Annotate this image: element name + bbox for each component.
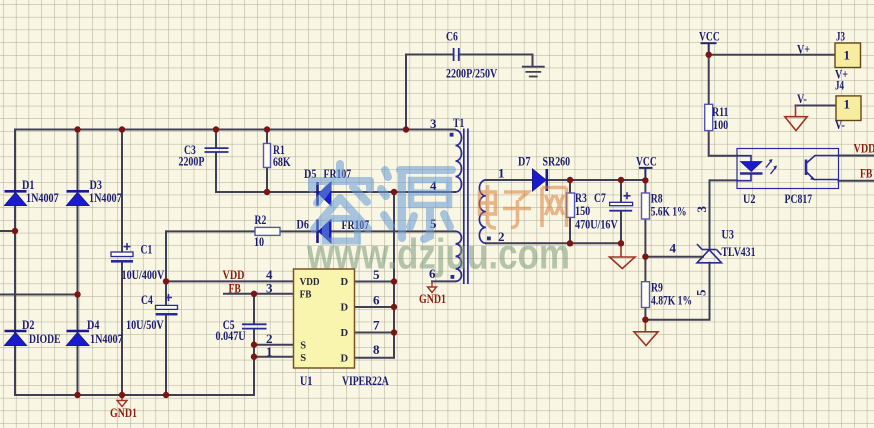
svg-text:GND1: GND1 bbox=[110, 405, 137, 420]
svg-text:10U/400V: 10U/400V bbox=[122, 267, 165, 282]
svg-text:S: S bbox=[300, 341, 306, 352]
svg-text:10: 10 bbox=[254, 234, 264, 249]
svg-text:J4: J4 bbox=[835, 78, 844, 93]
svg-text:R2: R2 bbox=[255, 212, 267, 227]
svg-text:1N4007: 1N4007 bbox=[90, 331, 123, 346]
svg-text:8: 8 bbox=[373, 342, 380, 357]
svg-text:100: 100 bbox=[713, 117, 728, 132]
svg-text:68K: 68K bbox=[273, 154, 291, 169]
svg-text:V-: V- bbox=[835, 117, 845, 132]
svg-text:U2: U2 bbox=[743, 191, 755, 206]
svg-text:VCC: VCC bbox=[636, 154, 657, 169]
svg-text:C6: C6 bbox=[446, 29, 458, 44]
svg-text:1N4007: 1N4007 bbox=[26, 190, 59, 205]
svg-text:6: 6 bbox=[373, 293, 380, 308]
svg-text:10U/50V: 10U/50V bbox=[126, 317, 164, 332]
svg-text:2200P/250V: 2200P/250V bbox=[446, 66, 498, 81]
svg-text:D2: D2 bbox=[22, 317, 34, 332]
svg-text:PC817: PC817 bbox=[785, 191, 813, 206]
svg-text:470U/16V: 470U/16V bbox=[575, 217, 618, 232]
svg-text:1N4007: 1N4007 bbox=[89, 190, 122, 205]
svg-text:1: 1 bbox=[844, 48, 851, 63]
svg-text:www.dzjuu.com: www.dzjuu.com bbox=[306, 232, 570, 279]
svg-text:DIODE: DIODE bbox=[29, 331, 61, 346]
svg-text:4.87K 1%: 4.87K 1% bbox=[651, 293, 692, 308]
svg-text:V-: V- bbox=[797, 91, 807, 106]
svg-text:J3: J3 bbox=[836, 29, 845, 44]
svg-text:SR260: SR260 bbox=[543, 153, 571, 168]
svg-text:3: 3 bbox=[266, 281, 273, 296]
svg-text:5.6K 1%: 5.6K 1% bbox=[651, 203, 687, 218]
svg-text:D4: D4 bbox=[87, 317, 100, 332]
svg-text:D: D bbox=[341, 328, 349, 339]
svg-text:4: 4 bbox=[670, 241, 677, 256]
svg-text:D7: D7 bbox=[518, 153, 531, 168]
svg-text:VCC: VCC bbox=[699, 29, 720, 44]
svg-text:D6: D6 bbox=[297, 217, 310, 232]
svg-text:C1: C1 bbox=[141, 242, 153, 257]
svg-text:U3: U3 bbox=[722, 227, 735, 242]
svg-text:FB: FB bbox=[300, 290, 312, 301]
svg-text:FB: FB bbox=[229, 281, 242, 296]
svg-text:U1: U1 bbox=[300, 373, 312, 388]
svg-text:2200P: 2200P bbox=[179, 153, 205, 168]
svg-text:D: D bbox=[341, 353, 349, 364]
svg-text:5: 5 bbox=[694, 289, 709, 296]
svg-text:3: 3 bbox=[430, 116, 437, 131]
svg-text:VDD: VDD bbox=[854, 140, 874, 155]
svg-text:C7: C7 bbox=[594, 190, 606, 205]
svg-text:T1: T1 bbox=[453, 115, 464, 130]
svg-text:3: 3 bbox=[694, 206, 709, 213]
svg-text:GND1: GND1 bbox=[419, 291, 446, 306]
svg-text:0.047U: 0.047U bbox=[216, 328, 247, 343]
svg-text:FB: FB bbox=[860, 166, 873, 181]
svg-text:V+: V+ bbox=[797, 42, 810, 57]
svg-text:TLV431: TLV431 bbox=[722, 244, 756, 259]
svg-text:D: D bbox=[341, 303, 349, 314]
svg-text:1: 1 bbox=[266, 344, 273, 359]
svg-text:VIPER22A: VIPER22A bbox=[342, 373, 389, 388]
svg-text:S: S bbox=[300, 353, 306, 364]
svg-text:1: 1 bbox=[498, 166, 505, 181]
svg-text:7: 7 bbox=[373, 318, 380, 333]
svg-text:1: 1 bbox=[844, 97, 851, 112]
svg-text:C4: C4 bbox=[141, 292, 153, 307]
